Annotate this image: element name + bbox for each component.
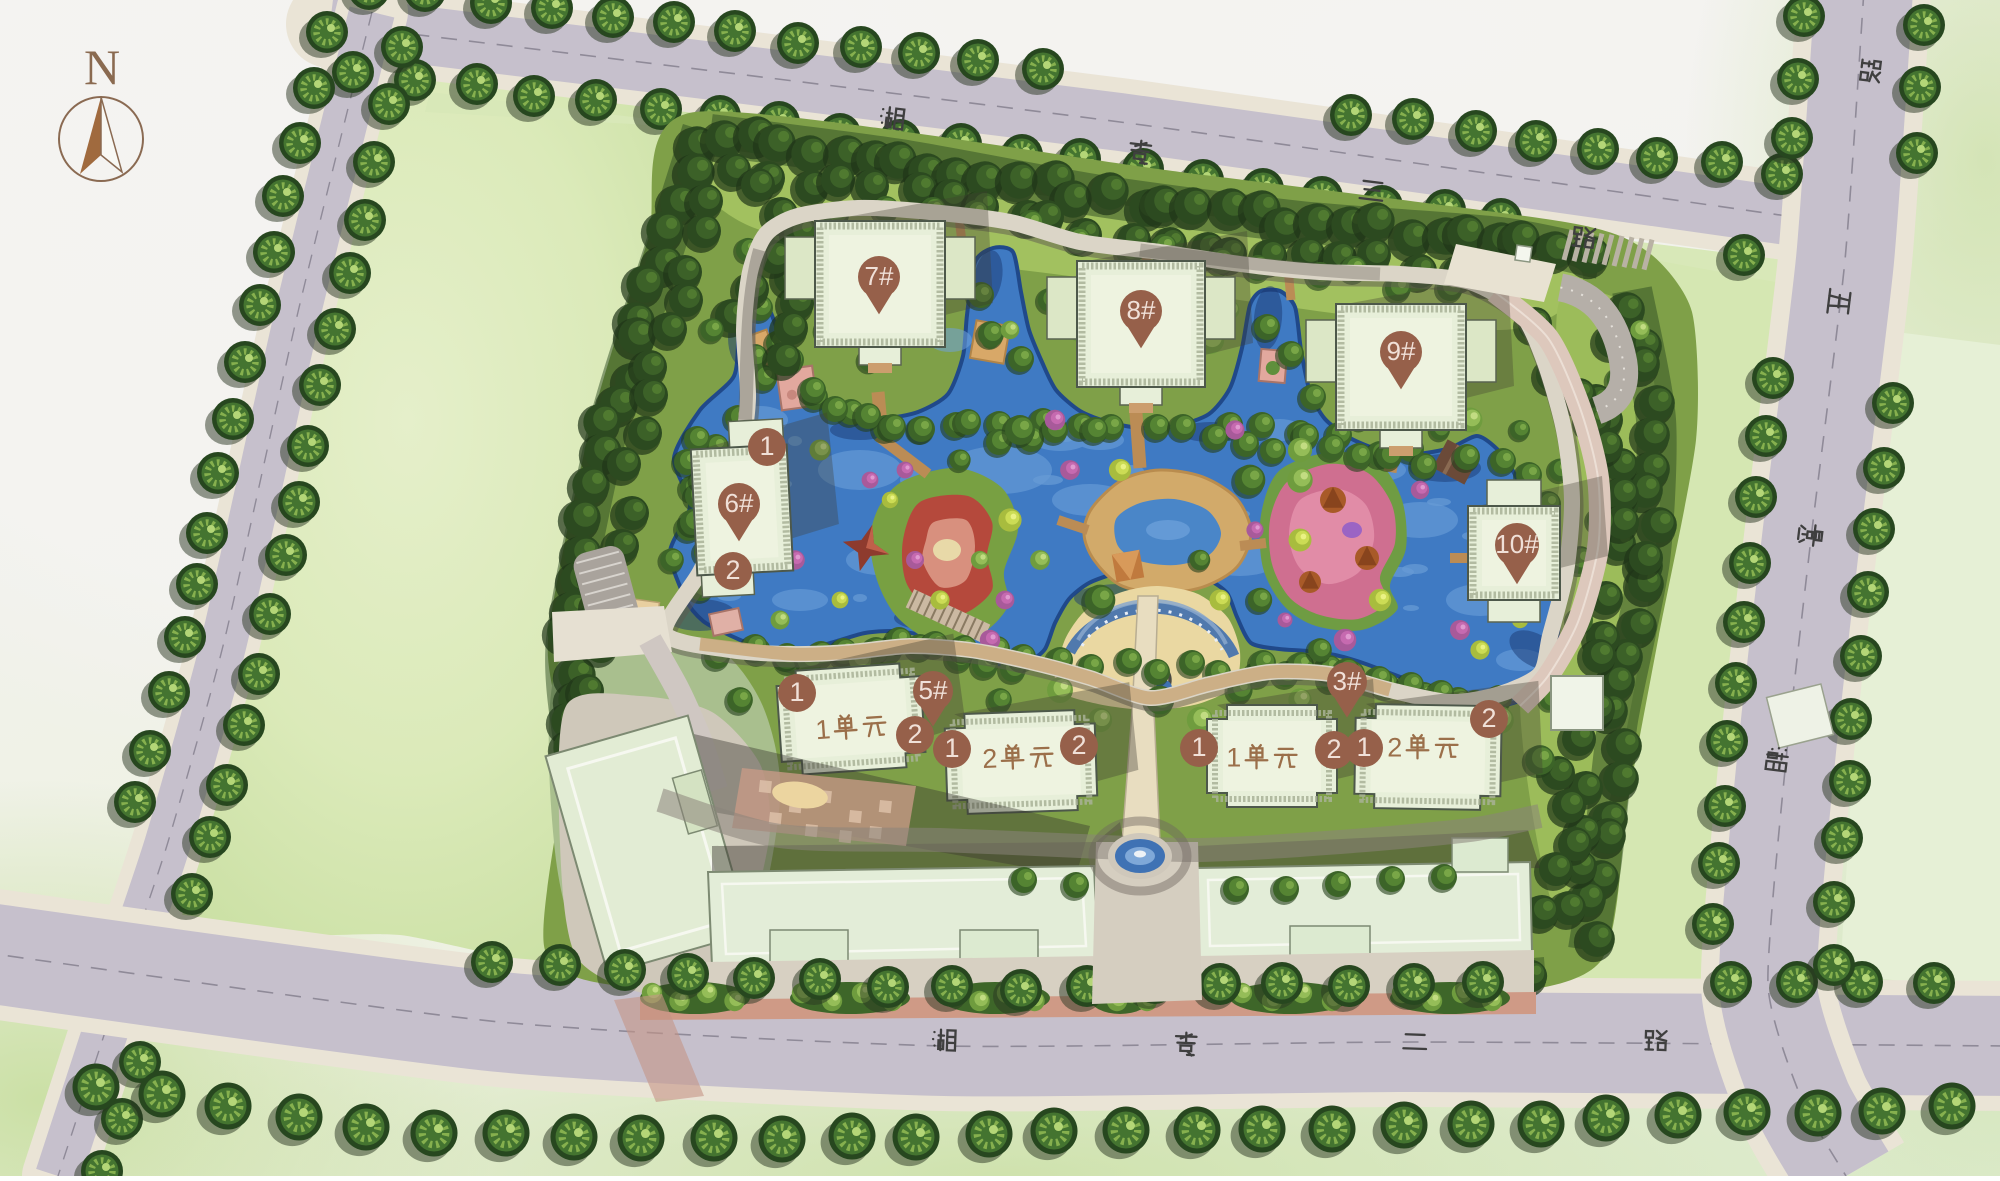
svg-text:1: 1 — [1356, 732, 1371, 762]
svg-text:1: 1 — [944, 733, 959, 763]
svg-text:1: 1 — [789, 677, 804, 707]
svg-text:3#: 3# — [1333, 666, 1362, 696]
svg-text:2: 2 — [1326, 734, 1341, 764]
svg-text:5#: 5# — [919, 675, 948, 705]
svg-text:6#: 6# — [725, 488, 754, 518]
svg-text:10#: 10# — [1495, 529, 1539, 559]
svg-text:2: 2 — [725, 555, 740, 585]
svg-text:N: N — [84, 39, 120, 95]
svg-text:2: 2 — [1071, 730, 1086, 760]
svg-text:1: 1 — [814, 714, 831, 745]
svg-text:9#: 9# — [1387, 336, 1416, 366]
svg-text:2: 2 — [982, 743, 998, 774]
svg-text:8#: 8# — [1127, 295, 1156, 325]
svg-text:2: 2 — [1481, 703, 1496, 733]
svg-text:7#: 7# — [865, 261, 894, 291]
svg-text:1: 1 — [1226, 743, 1241, 773]
svg-text:2: 2 — [1387, 733, 1402, 763]
svg-text:1: 1 — [1191, 732, 1206, 762]
svg-text:2: 2 — [907, 719, 922, 749]
svg-text:1: 1 — [759, 431, 774, 461]
